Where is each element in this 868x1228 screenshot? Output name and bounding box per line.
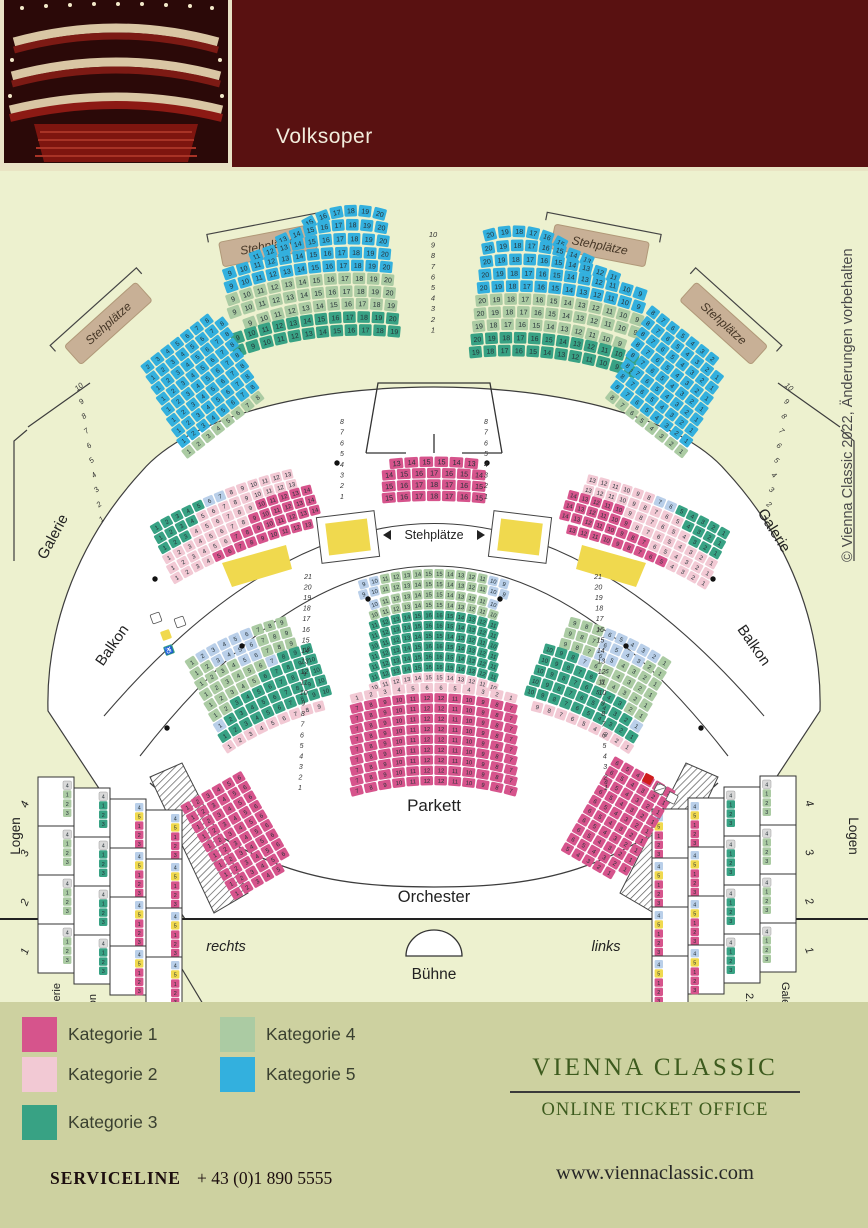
seat[interactable]: 12	[420, 735, 433, 745]
seat[interactable]: 12	[420, 766, 433, 776]
seat[interactable]: 13	[401, 591, 412, 602]
seat[interactable]: 19	[469, 346, 483, 359]
seat[interactable]: 9	[631, 299, 647, 314]
seat[interactable]: 13	[402, 580, 412, 590]
seat[interactable]: 10	[239, 287, 254, 302]
seat[interactable]: 20	[481, 241, 495, 255]
seat[interactable]: 20	[376, 234, 390, 247]
seat[interactable]: 11	[406, 776, 419, 786]
seat[interactable]: 16	[442, 468, 456, 479]
seat[interactable]: 5	[406, 683, 419, 693]
seat[interactable]: 11	[406, 735, 419, 745]
seat[interactable]: 16	[528, 332, 541, 344]
seat[interactable]: 12	[586, 314, 601, 328]
seat[interactable]: 14	[455, 664, 466, 675]
seat[interactable]: 14	[401, 643, 412, 654]
seat[interactable]: 12	[466, 593, 477, 604]
seat[interactable]: 19	[496, 240, 510, 253]
seat[interactable]: 20	[470, 333, 484, 346]
seat[interactable]: 15	[304, 235, 318, 248]
seat[interactable]: 9	[632, 286, 648, 301]
seat[interactable]: 14	[412, 590, 422, 600]
seat[interactable]: 15	[382, 492, 396, 503]
seat[interactable]: 12	[588, 301, 603, 315]
seat[interactable]: 12	[590, 288, 605, 302]
seat[interactable]: 14	[445, 569, 455, 579]
seat[interactable]: 13	[456, 570, 466, 580]
seat[interactable]: 17	[333, 233, 346, 245]
seat[interactable]: 15	[546, 294, 560, 307]
seat[interactable]: 18	[427, 479, 441, 489]
seat[interactable]: 16	[423, 652, 433, 662]
seat[interactable]: 12	[466, 582, 477, 593]
seat[interactable]: 10	[462, 757, 476, 768]
seat[interactable]: 16	[531, 306, 544, 318]
seat[interactable]: 11	[380, 573, 391, 584]
seat[interactable]: 16	[341, 298, 354, 310]
seat[interactable]: 19	[365, 260, 378, 272]
seat[interactable]: 12	[390, 603, 401, 614]
seat[interactable]: 20	[378, 248, 392, 261]
seat[interactable]: 15	[423, 672, 433, 682]
seat[interactable]: 10	[462, 777, 476, 788]
seat[interactable]: 14	[412, 580, 422, 590]
seat[interactable]: 12	[284, 304, 299, 318]
seat[interactable]: 14	[294, 262, 308, 275]
seat[interactable]: 13	[282, 290, 296, 304]
seat[interactable]: 14	[401, 664, 412, 675]
seat[interactable]: 20	[372, 207, 387, 221]
seat[interactable]: 15	[445, 642, 455, 652]
seat[interactable]: 15	[445, 611, 455, 621]
seat[interactable]: 15	[529, 319, 542, 332]
seat[interactable]: 15	[423, 600, 433, 610]
seat[interactable]: 12	[390, 634, 401, 645]
seat[interactable]: 13	[456, 580, 466, 590]
seat[interactable]: 14	[401, 612, 412, 623]
seat[interactable]: 17	[359, 324, 372, 336]
seat[interactable]: 12	[420, 693, 433, 703]
seat[interactable]: 17	[501, 318, 514, 330]
seat[interactable]: 16	[423, 641, 433, 651]
seat[interactable]: 18	[511, 240, 524, 252]
seat[interactable]: 12	[466, 571, 477, 582]
seat[interactable]: 16	[423, 621, 433, 631]
seat[interactable]: 12	[434, 735, 447, 745]
seat[interactable]: 20	[482, 227, 497, 241]
seat[interactable]: 11	[448, 704, 461, 714]
seat[interactable]: 18	[512, 225, 525, 237]
seat[interactable]: 11	[448, 725, 461, 735]
seat[interactable]: 15	[311, 287, 325, 300]
seat[interactable]: 14	[556, 335, 570, 348]
seat[interactable]: 17	[343, 311, 356, 323]
seat[interactable]: 13	[389, 458, 404, 470]
seat[interactable]: 10	[392, 777, 406, 788]
seat[interactable]: 12	[420, 703, 433, 713]
seat[interactable]: 14	[455, 612, 466, 623]
seat[interactable]: 18	[354, 285, 367, 297]
seat[interactable]: 15	[551, 255, 565, 268]
seat[interactable]: 13	[390, 624, 401, 635]
seat[interactable]: 13	[401, 602, 412, 613]
seat[interactable]: 16	[397, 480, 411, 491]
seat[interactable]: 19	[384, 299, 398, 312]
seat[interactable]: 11	[251, 270, 266, 284]
seat[interactable]: 16	[538, 241, 552, 255]
seat[interactable]: 17	[338, 272, 351, 284]
seat[interactable]: 4	[392, 684, 406, 695]
seat[interactable]: 14	[412, 569, 422, 579]
seat[interactable]: 10	[392, 746, 406, 757]
seat[interactable]: 12	[420, 745, 433, 755]
seat[interactable]: 13	[455, 632, 466, 643]
seat[interactable]: 12	[420, 714, 433, 724]
seat[interactable]: 9	[223, 279, 239, 294]
seat[interactable]: 19	[490, 293, 503, 305]
seat[interactable]: 13	[401, 633, 412, 644]
seat[interactable]: 15	[423, 631, 433, 641]
seat[interactable]: 11	[448, 714, 461, 724]
seat[interactable]: 15	[434, 590, 444, 600]
seat[interactable]: 15	[382, 481, 396, 492]
seat[interactable]: 17	[520, 280, 533, 292]
seat[interactable]: 11	[600, 317, 615, 331]
seat[interactable]: 11	[406, 766, 419, 776]
seat[interactable]: 11	[406, 694, 419, 704]
seat[interactable]: 15	[545, 307, 559, 320]
seat[interactable]: 15	[445, 652, 455, 662]
seat[interactable]: 15	[542, 333, 556, 346]
seat[interactable]: 16	[423, 610, 433, 620]
seat[interactable]: 11	[406, 756, 419, 766]
seat[interactable]: 14	[401, 622, 412, 633]
seat[interactable]: 15	[419, 456, 433, 467]
seat[interactable]: 16	[317, 220, 331, 234]
seat[interactable]: 13	[569, 337, 583, 351]
seat[interactable]: 10	[392, 736, 406, 747]
seat[interactable]: 20	[386, 312, 400, 325]
seat[interactable]: 10	[237, 274, 252, 289]
seat[interactable]: 15	[434, 672, 444, 682]
seat[interactable]: 14	[382, 469, 396, 480]
seat[interactable]: 14	[412, 673, 422, 683]
seat[interactable]: 15	[548, 282, 562, 295]
seat[interactable]: 15	[308, 261, 322, 274]
seat[interactable]: 19	[472, 320, 486, 333]
seat[interactable]: 10	[392, 705, 406, 716]
seat[interactable]: 5	[448, 683, 461, 693]
seat[interactable]: 10	[392, 767, 406, 778]
seat[interactable]: 10	[240, 300, 255, 315]
seat[interactable]: 17	[412, 479, 426, 490]
seat[interactable]: 14	[559, 309, 573, 322]
seat[interactable]: 17	[522, 267, 535, 279]
seat[interactable]: 18	[348, 233, 361, 245]
seat[interactable]: 14	[401, 653, 412, 664]
seat[interactable]: 11	[406, 745, 419, 755]
seat[interactable]: 12	[466, 634, 477, 645]
seat[interactable]: 15	[309, 274, 323, 287]
seat[interactable]: 9	[222, 266, 238, 281]
seat[interactable]: 17	[337, 260, 350, 272]
seat[interactable]: 18	[503, 306, 516, 318]
seat[interactable]: 10	[617, 295, 632, 310]
seat[interactable]: 13	[278, 252, 292, 266]
seat[interactable]: 14	[564, 270, 578, 283]
seat[interactable]: 17	[514, 332, 527, 344]
seat[interactable]: 12	[434, 776, 447, 786]
seat[interactable]: 19	[485, 332, 498, 344]
seat[interactable]: 16	[345, 324, 358, 336]
seat[interactable]: 11	[602, 304, 617, 318]
seat[interactable]: 15	[412, 652, 422, 662]
seat[interactable]: 12	[391, 571, 402, 582]
seat[interactable]: 13	[455, 674, 466, 685]
seat[interactable]: 18	[370, 298, 383, 310]
seat[interactable]: 4	[462, 684, 476, 695]
seat[interactable]: 15	[434, 600, 444, 610]
seat[interactable]: 6	[434, 683, 447, 693]
seat[interactable]: 6	[420, 683, 433, 693]
seat[interactable]: 14	[543, 320, 557, 333]
seat[interactable]: 18	[353, 272, 366, 284]
seat[interactable]: 12	[434, 766, 447, 776]
seat[interactable]: 13	[401, 674, 412, 685]
seat[interactable]: 10	[462, 736, 476, 747]
seat[interactable]: 16	[534, 281, 547, 293]
seat[interactable]: 14	[445, 600, 455, 610]
seat[interactable]: 12	[434, 755, 447, 765]
seat[interactable]: 11	[253, 283, 268, 297]
seat[interactable]: 19	[488, 306, 501, 318]
seat[interactable]: 14	[560, 296, 574, 309]
seat[interactable]: 12	[390, 593, 401, 604]
seat[interactable]: 17	[335, 247, 348, 259]
seat[interactable]: 12	[434, 693, 447, 703]
seat[interactable]: 20	[381, 273, 395, 286]
seat[interactable]: 12	[571, 324, 586, 338]
seat[interactable]: 13	[298, 301, 312, 315]
seat[interactable]: 10	[614, 320, 629, 335]
seat[interactable]: 12	[267, 280, 282, 294]
seat[interactable]: 19	[498, 225, 512, 238]
seat[interactable]: 11	[448, 745, 461, 755]
seat[interactable]: 10	[462, 746, 476, 757]
seat[interactable]: 14	[445, 590, 455, 600]
seat[interactable]: 10	[392, 757, 406, 768]
seat[interactable]: 13	[574, 298, 588, 312]
seat[interactable]: 16	[457, 491, 471, 502]
seat[interactable]: 13	[466, 624, 477, 635]
seat[interactable]: 14	[455, 653, 466, 664]
seat[interactable]: 11	[448, 766, 461, 776]
seat[interactable]: 16	[536, 268, 549, 280]
seat[interactable]: 11	[603, 291, 618, 305]
seat[interactable]: 13	[390, 655, 401, 666]
seat[interactable]: 14	[562, 283, 576, 296]
seat[interactable]: 10	[462, 695, 476, 706]
seat[interactable]: 19	[371, 311, 384, 323]
seat[interactable]: 17	[356, 298, 369, 310]
seat[interactable]: 19	[491, 280, 504, 292]
seat[interactable]: 18	[427, 491, 441, 501]
seat[interactable]: 13	[466, 665, 477, 676]
seat[interactable]: 14	[455, 622, 466, 633]
seat[interactable]: 13	[557, 322, 571, 336]
seat[interactable]: 20	[383, 286, 397, 299]
seat[interactable]: 12	[434, 703, 447, 713]
seat[interactable]: 15	[434, 631, 444, 641]
seat[interactable]: 16	[319, 233, 333, 246]
seat[interactable]: 15	[330, 324, 343, 336]
seat[interactable]: 20	[478, 268, 492, 281]
seat[interactable]: 17	[329, 206, 344, 220]
seat[interactable]: 13	[576, 285, 590, 299]
seat[interactable]: 12	[434, 745, 447, 755]
seat[interactable]: 13	[466, 614, 477, 625]
seat[interactable]: 18	[351, 260, 364, 272]
seat[interactable]: 15	[457, 468, 471, 479]
seat[interactable]: 17	[526, 226, 541, 240]
seat[interactable]: 19	[367, 273, 380, 285]
seat[interactable]: 16	[322, 260, 335, 272]
seat[interactable]: 9	[226, 304, 242, 319]
seat[interactable]: 9	[245, 339, 260, 354]
seat[interactable]: 12	[434, 714, 447, 724]
seat[interactable]: 15	[327, 298, 340, 311]
seat[interactable]: 15	[412, 611, 422, 621]
seat[interactable]: 11	[448, 735, 461, 745]
seat[interactable]: 15	[434, 456, 448, 467]
seat[interactable]: 10	[462, 726, 476, 737]
seat[interactable]: 12	[287, 329, 301, 343]
seat[interactable]: 15	[526, 345, 539, 357]
seat[interactable]: 17	[517, 306, 530, 318]
seat[interactable]: 17	[331, 219, 344, 232]
seat[interactable]: 16	[434, 652, 444, 662]
seat[interactable]: 20	[379, 261, 393, 274]
seat[interactable]: 14	[445, 673, 455, 683]
seat[interactable]: 13	[577, 272, 591, 286]
seat[interactable]: 18	[504, 293, 517, 305]
website-link[interactable]: www.viennaclassic.com	[475, 1162, 835, 1185]
seat[interactable]: 16	[324, 273, 337, 285]
seat[interactable]: 18	[344, 205, 357, 217]
seat[interactable]: 13	[301, 327, 315, 340]
seat[interactable]: 15	[434, 569, 444, 579]
seat[interactable]: 14	[445, 631, 455, 641]
seat[interactable]: 12	[391, 582, 402, 593]
seat[interactable]: 13	[466, 655, 477, 666]
seat[interactable]: 13	[390, 614, 401, 625]
seat[interactable]: 19	[358, 205, 372, 218]
seat[interactable]: 11	[477, 573, 488, 584]
seat[interactable]: 17	[442, 479, 456, 490]
seat[interactable]: 17	[525, 240, 538, 253]
seat[interactable]: 15	[434, 579, 444, 589]
seat[interactable]: 19	[360, 219, 374, 232]
seat[interactable]: 18	[357, 311, 370, 323]
seat[interactable]: 15	[306, 248, 320, 261]
seat[interactable]: 15	[412, 642, 422, 652]
seat[interactable]: 16	[457, 480, 471, 491]
seat[interactable]: 10	[462, 767, 476, 778]
seat[interactable]: 15	[445, 662, 455, 672]
seat[interactable]: 13	[464, 458, 479, 470]
seat[interactable]: 15	[423, 590, 433, 600]
seat[interactable]: 18	[346, 219, 359, 231]
seat[interactable]: 10	[462, 705, 476, 716]
seat[interactable]: 15	[445, 621, 455, 631]
seat[interactable]: 10	[392, 695, 406, 706]
seat[interactable]: 11	[406, 725, 419, 735]
seat[interactable]: 18	[483, 345, 496, 357]
seat[interactable]: 10	[392, 726, 406, 737]
seat[interactable]: 16	[434, 662, 444, 672]
seat[interactable]: 19	[362, 233, 375, 245]
seat[interactable]: 11	[406, 714, 419, 724]
seat[interactable]: 12	[568, 350, 582, 364]
seat[interactable]: 14	[412, 600, 422, 610]
seat[interactable]: 11	[254, 296, 269, 310]
seat[interactable]: 16	[434, 610, 444, 620]
seat[interactable]: 13	[466, 645, 477, 656]
seat[interactable]: 13	[279, 265, 293, 279]
seat[interactable]: 13	[455, 601, 466, 612]
seat[interactable]: 12	[420, 776, 433, 786]
seat[interactable]: 16	[423, 662, 433, 672]
seat[interactable]: 15	[397, 468, 411, 479]
seat[interactable]: 14	[455, 643, 466, 654]
seat[interactable]: 17	[340, 285, 353, 297]
seat[interactable]: 16	[328, 312, 341, 324]
seat[interactable]: 16	[537, 254, 551, 267]
seat[interactable]: 13	[455, 591, 466, 602]
seat[interactable]: 13	[286, 316, 300, 330]
seat[interactable]: 10	[615, 308, 630, 323]
seat[interactable]: 19	[387, 325, 401, 338]
seat[interactable]: 13	[554, 348, 568, 361]
seat[interactable]: 13	[402, 570, 412, 580]
seat[interactable]: 19	[364, 247, 377, 259]
seat[interactable]: 20	[374, 221, 388, 235]
seat[interactable]: 11	[406, 704, 419, 714]
seat[interactable]: 17	[498, 345, 511, 357]
seat[interactable]: 12	[466, 603, 477, 614]
seat[interactable]: 19	[368, 286, 381, 298]
seat[interactable]: 13	[573, 311, 587, 325]
seat[interactable]: 18	[349, 247, 362, 259]
seat[interactable]: 11	[273, 332, 288, 346]
seat[interactable]: 14	[449, 457, 463, 468]
seat[interactable]: 12	[434, 724, 447, 734]
seat[interactable]: 14	[412, 631, 422, 641]
seat[interactable]: 9	[225, 291, 241, 306]
seat[interactable]: 19	[494, 254, 507, 266]
seat[interactable]: 16	[325, 286, 338, 298]
seat[interactable]: 15	[550, 269, 564, 282]
seat[interactable]: 11	[477, 583, 488, 594]
seat[interactable]: 18	[509, 253, 522, 265]
seat[interactable]: 17	[523, 253, 536, 265]
seat[interactable]: 16	[434, 621, 444, 631]
seat[interactable]: 18	[499, 332, 512, 344]
seat[interactable]: 17	[518, 293, 531, 305]
seat[interactable]: 14	[295, 275, 309, 288]
seat[interactable]: 10	[619, 282, 634, 297]
seat[interactable]: 11	[448, 756, 461, 766]
